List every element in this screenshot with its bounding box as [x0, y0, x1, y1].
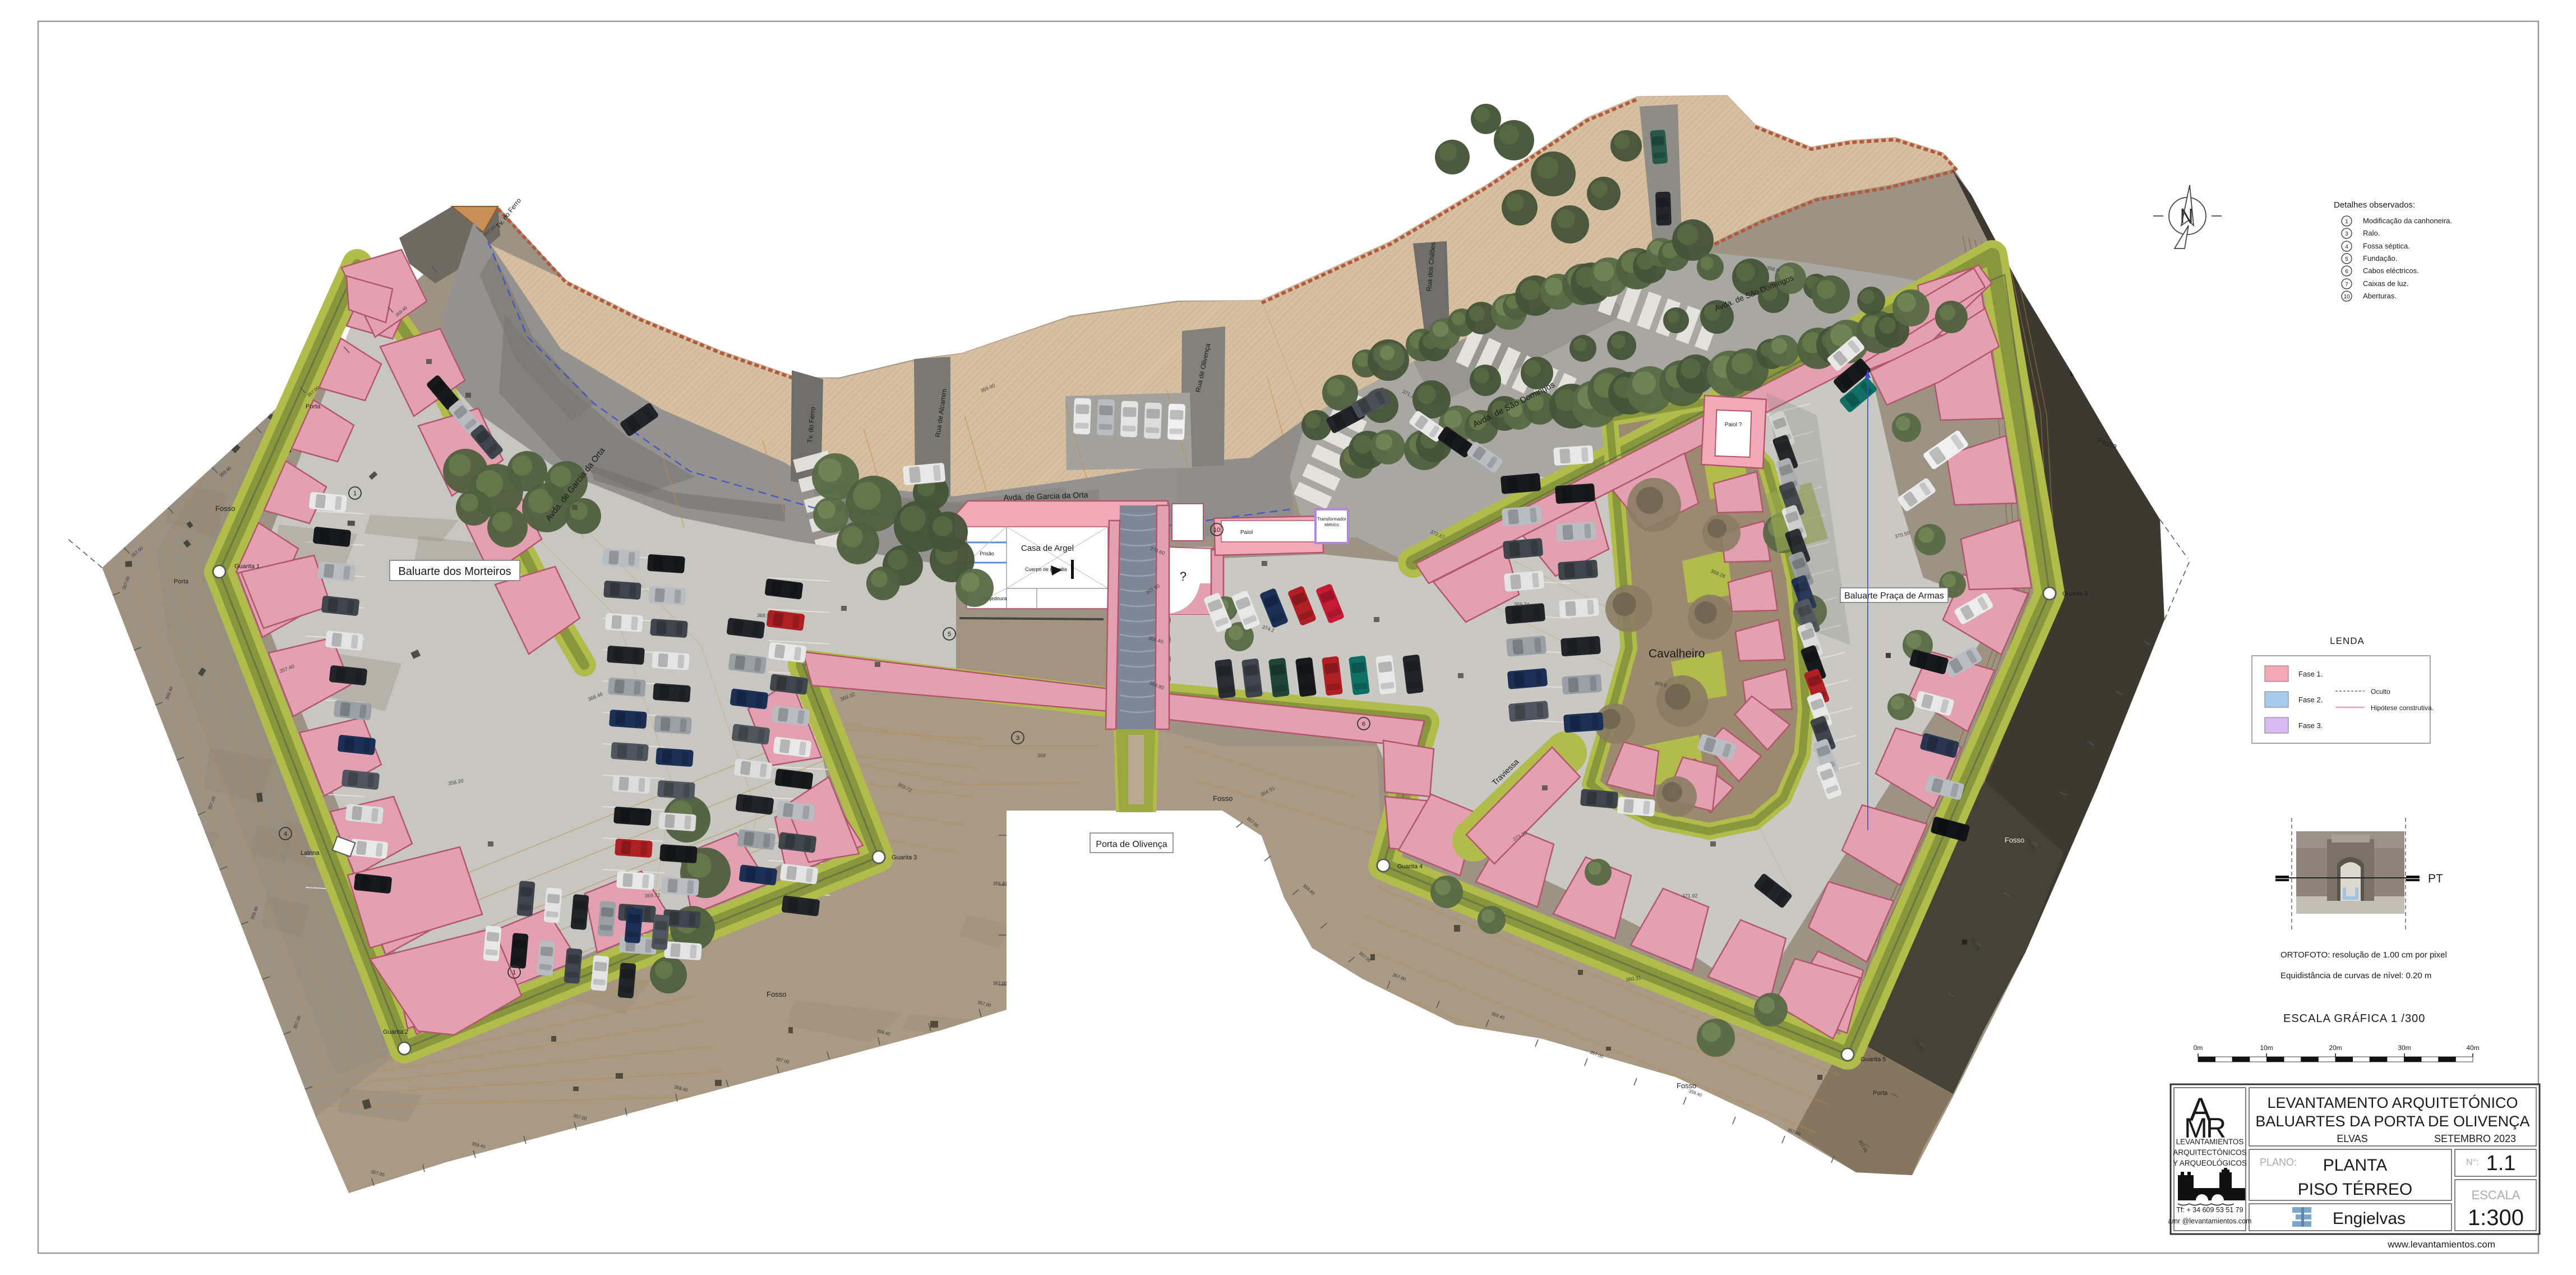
svg-text:Paiol ?: Paiol ?: [1725, 422, 1742, 428]
svg-text:Casa de Argel: Casa de Argel: [1021, 544, 1074, 553]
svg-text:www.levantamientos.com: www.levantamientos.com: [2387, 1239, 2495, 1250]
svg-text:4: 4: [284, 831, 287, 837]
svg-text:1: 1: [513, 969, 516, 976]
svg-text:Y ARQUEOLÓGICOS: Y ARQUEOLÓGICOS: [2173, 1159, 2247, 1167]
svg-text:4: 4: [2345, 244, 2348, 250]
svg-text:Transformador: Transformador: [1317, 517, 1347, 522]
svg-text:Fosso: Fosso: [2005, 836, 2024, 844]
svg-text:6: 6: [1362, 721, 1365, 728]
svg-text:Ralo.: Ralo.: [2363, 229, 2380, 237]
svg-text:Guarita 6: Guarita 6: [2062, 591, 2088, 597]
svg-text:PT: PT: [2428, 872, 2443, 885]
svg-text:10: 10: [1213, 527, 1220, 533]
svg-text:SETEMBRO 2023: SETEMBRO 2023: [2434, 1133, 2516, 1144]
svg-text:Fase 2.: Fase 2.: [2298, 696, 2323, 704]
svg-text:N°:: N°:: [2466, 1158, 2478, 1167]
svg-text:elétrico: elétrico: [1324, 522, 1339, 527]
svg-text:0m: 0m: [2194, 1044, 2203, 1052]
svg-text:Caixas de luz.: Caixas de luz.: [2363, 279, 2409, 288]
svg-text:ORTOFOTO: resolução de 1.00 c: ORTOFOTO: resolução de 1.00 cm por pixel: [2280, 950, 2447, 960]
svg-text:LEVANTAMENTO ARQUITETÓNICO: LEVANTAMENTO ARQUITETÓNICO: [2267, 1094, 2518, 1111]
svg-text:Fundação.: Fundação.: [2363, 254, 2397, 263]
svg-text:Detalhes observados:: Detalhes observados:: [2334, 200, 2415, 210]
svg-text:Modificação da canhoneira.: Modificação da canhoneira.: [2363, 217, 2452, 225]
svg-text:3: 3: [1016, 735, 1019, 742]
svg-text:Porta: Porta: [174, 578, 189, 585]
svg-text:3: 3: [2345, 231, 2348, 237]
svg-text:Porta de Olivença: Porta de Olivença: [1096, 840, 1167, 849]
svg-text:ESCALA GRÁFICA 1 /300: ESCALA GRÁFICA 1 /300: [2283, 1012, 2425, 1025]
svg-text:Cuerpo de guardia: Cuerpo de guardia: [1025, 567, 1067, 572]
svg-text:359.40: 359.40: [993, 881, 1007, 886]
svg-text:Fossa séptica.: Fossa séptica.: [2363, 242, 2410, 250]
svg-text:357.00: 357.00: [993, 981, 1007, 986]
svg-text:Aberturas.: Aberturas.: [2363, 292, 2397, 300]
svg-text:Prisão: Prisão: [980, 551, 994, 556]
svg-text:7: 7: [2345, 282, 2348, 288]
svg-text:Guarita 1: Guarita 1: [234, 563, 260, 570]
svg-text:ESCALA: ESCALA: [2472, 1188, 2520, 1202]
svg-text:Guarita 4: Guarita 4: [1397, 863, 1423, 870]
svg-text:Oculto: Oculto: [2371, 688, 2390, 696]
svg-text:Paiol: Paiol: [1240, 530, 1253, 536]
svg-text:369.72: 369.72: [645, 892, 661, 899]
svg-text:PLANTA: PLANTA: [2323, 1156, 2387, 1175]
svg-text:5: 5: [948, 631, 951, 638]
svg-text:1.1: 1.1: [2486, 1152, 2516, 1175]
svg-text:Cabos eléctricos.: Cabos eléctricos.: [2363, 266, 2419, 275]
svg-text:30m: 30m: [2398, 1044, 2411, 1052]
svg-text:10: 10: [2343, 294, 2350, 300]
svg-text:Guarita 3: Guarita 3: [892, 854, 917, 861]
svg-text:Hipótese construtiva.: Hipótese construtiva.: [2371, 704, 2434, 712]
svg-text:Cavalheiro: Cavalheiro: [1649, 647, 1705, 660]
svg-text:Fosso: Fosso: [767, 990, 786, 998]
svg-text:1:300: 1:300: [2468, 1205, 2524, 1230]
svg-text:Latrina: Latrina: [301, 850, 320, 857]
svg-text:ELVAS: ELVAS: [2337, 1133, 2367, 1144]
svg-text:PISO TÉRREO: PISO TÉRREO: [2298, 1180, 2413, 1199]
svg-text:40m: 40m: [2466, 1044, 2479, 1052]
svg-text:10m: 10m: [2260, 1044, 2273, 1052]
svg-text:Guarita 5: Guarita 5: [1861, 1056, 1886, 1063]
svg-text:5: 5: [2345, 256, 2348, 263]
svg-text:Fosso: Fosso: [215, 504, 235, 513]
svg-text:1: 1: [2345, 219, 2348, 225]
svg-text:1: 1: [353, 490, 357, 497]
svg-text:371.92: 371.92: [1682, 893, 1698, 899]
svg-text:Baluarte dos Morteiros: Baluarte dos Morteiros: [398, 565, 511, 578]
svg-text:Porta: Porta: [306, 403, 321, 410]
svg-text:6: 6: [2345, 269, 2348, 275]
svg-text:Porta: Porta: [1873, 1090, 1888, 1097]
svg-text:368.51: 368.51: [757, 613, 773, 619]
svg-text:PLANO:: PLANO:: [2260, 1157, 2297, 1168]
svg-text:Baluarte Praça de Armas: Baluarte Praça de Armas: [1844, 591, 1944, 601]
svg-text:LENDA: LENDA: [2330, 636, 2365, 646]
svg-text:LEVANTAMIENTOS: LEVANTAMIENTOS: [2176, 1138, 2244, 1146]
svg-text:?: ?: [1180, 569, 1187, 583]
svg-text:Fase 1.: Fase 1.: [2298, 670, 2323, 678]
svg-text:20m: 20m: [2329, 1044, 2342, 1052]
svg-text:Equidistância de curvas de nív: Equidistância de curvas de nível: 0.20 m: [2280, 971, 2431, 981]
svg-text:Tf: + 34 609 53 51 79: Tf: + 34 609 53 51 79: [2176, 1206, 2243, 1214]
svg-text:Guarita 2: Guarita 2: [383, 1029, 408, 1035]
svg-text:BALUARTES DA PORTA DE OLIVENÇA: BALUARTES DA PORTA DE OLIVENÇA: [2255, 1113, 2529, 1130]
svg-text:ARQUITECTÓNICOS: ARQUITECTÓNICOS: [2173, 1148, 2246, 1157]
svg-text:Fosso: Fosso: [1213, 794, 1232, 803]
svg-text:Fase 3.: Fase 3.: [2298, 721, 2323, 730]
svg-text:369.24: 369.24: [1514, 601, 1530, 607]
svg-text:Fosso: Fosso: [1677, 1081, 1696, 1090]
svg-text:Engielvas: Engielvas: [2333, 1209, 2406, 1228]
svg-text:amr @levantamientos.com: amr @levantamientos.com: [2168, 1217, 2252, 1225]
svg-text:368: 368: [1037, 753, 1046, 758]
